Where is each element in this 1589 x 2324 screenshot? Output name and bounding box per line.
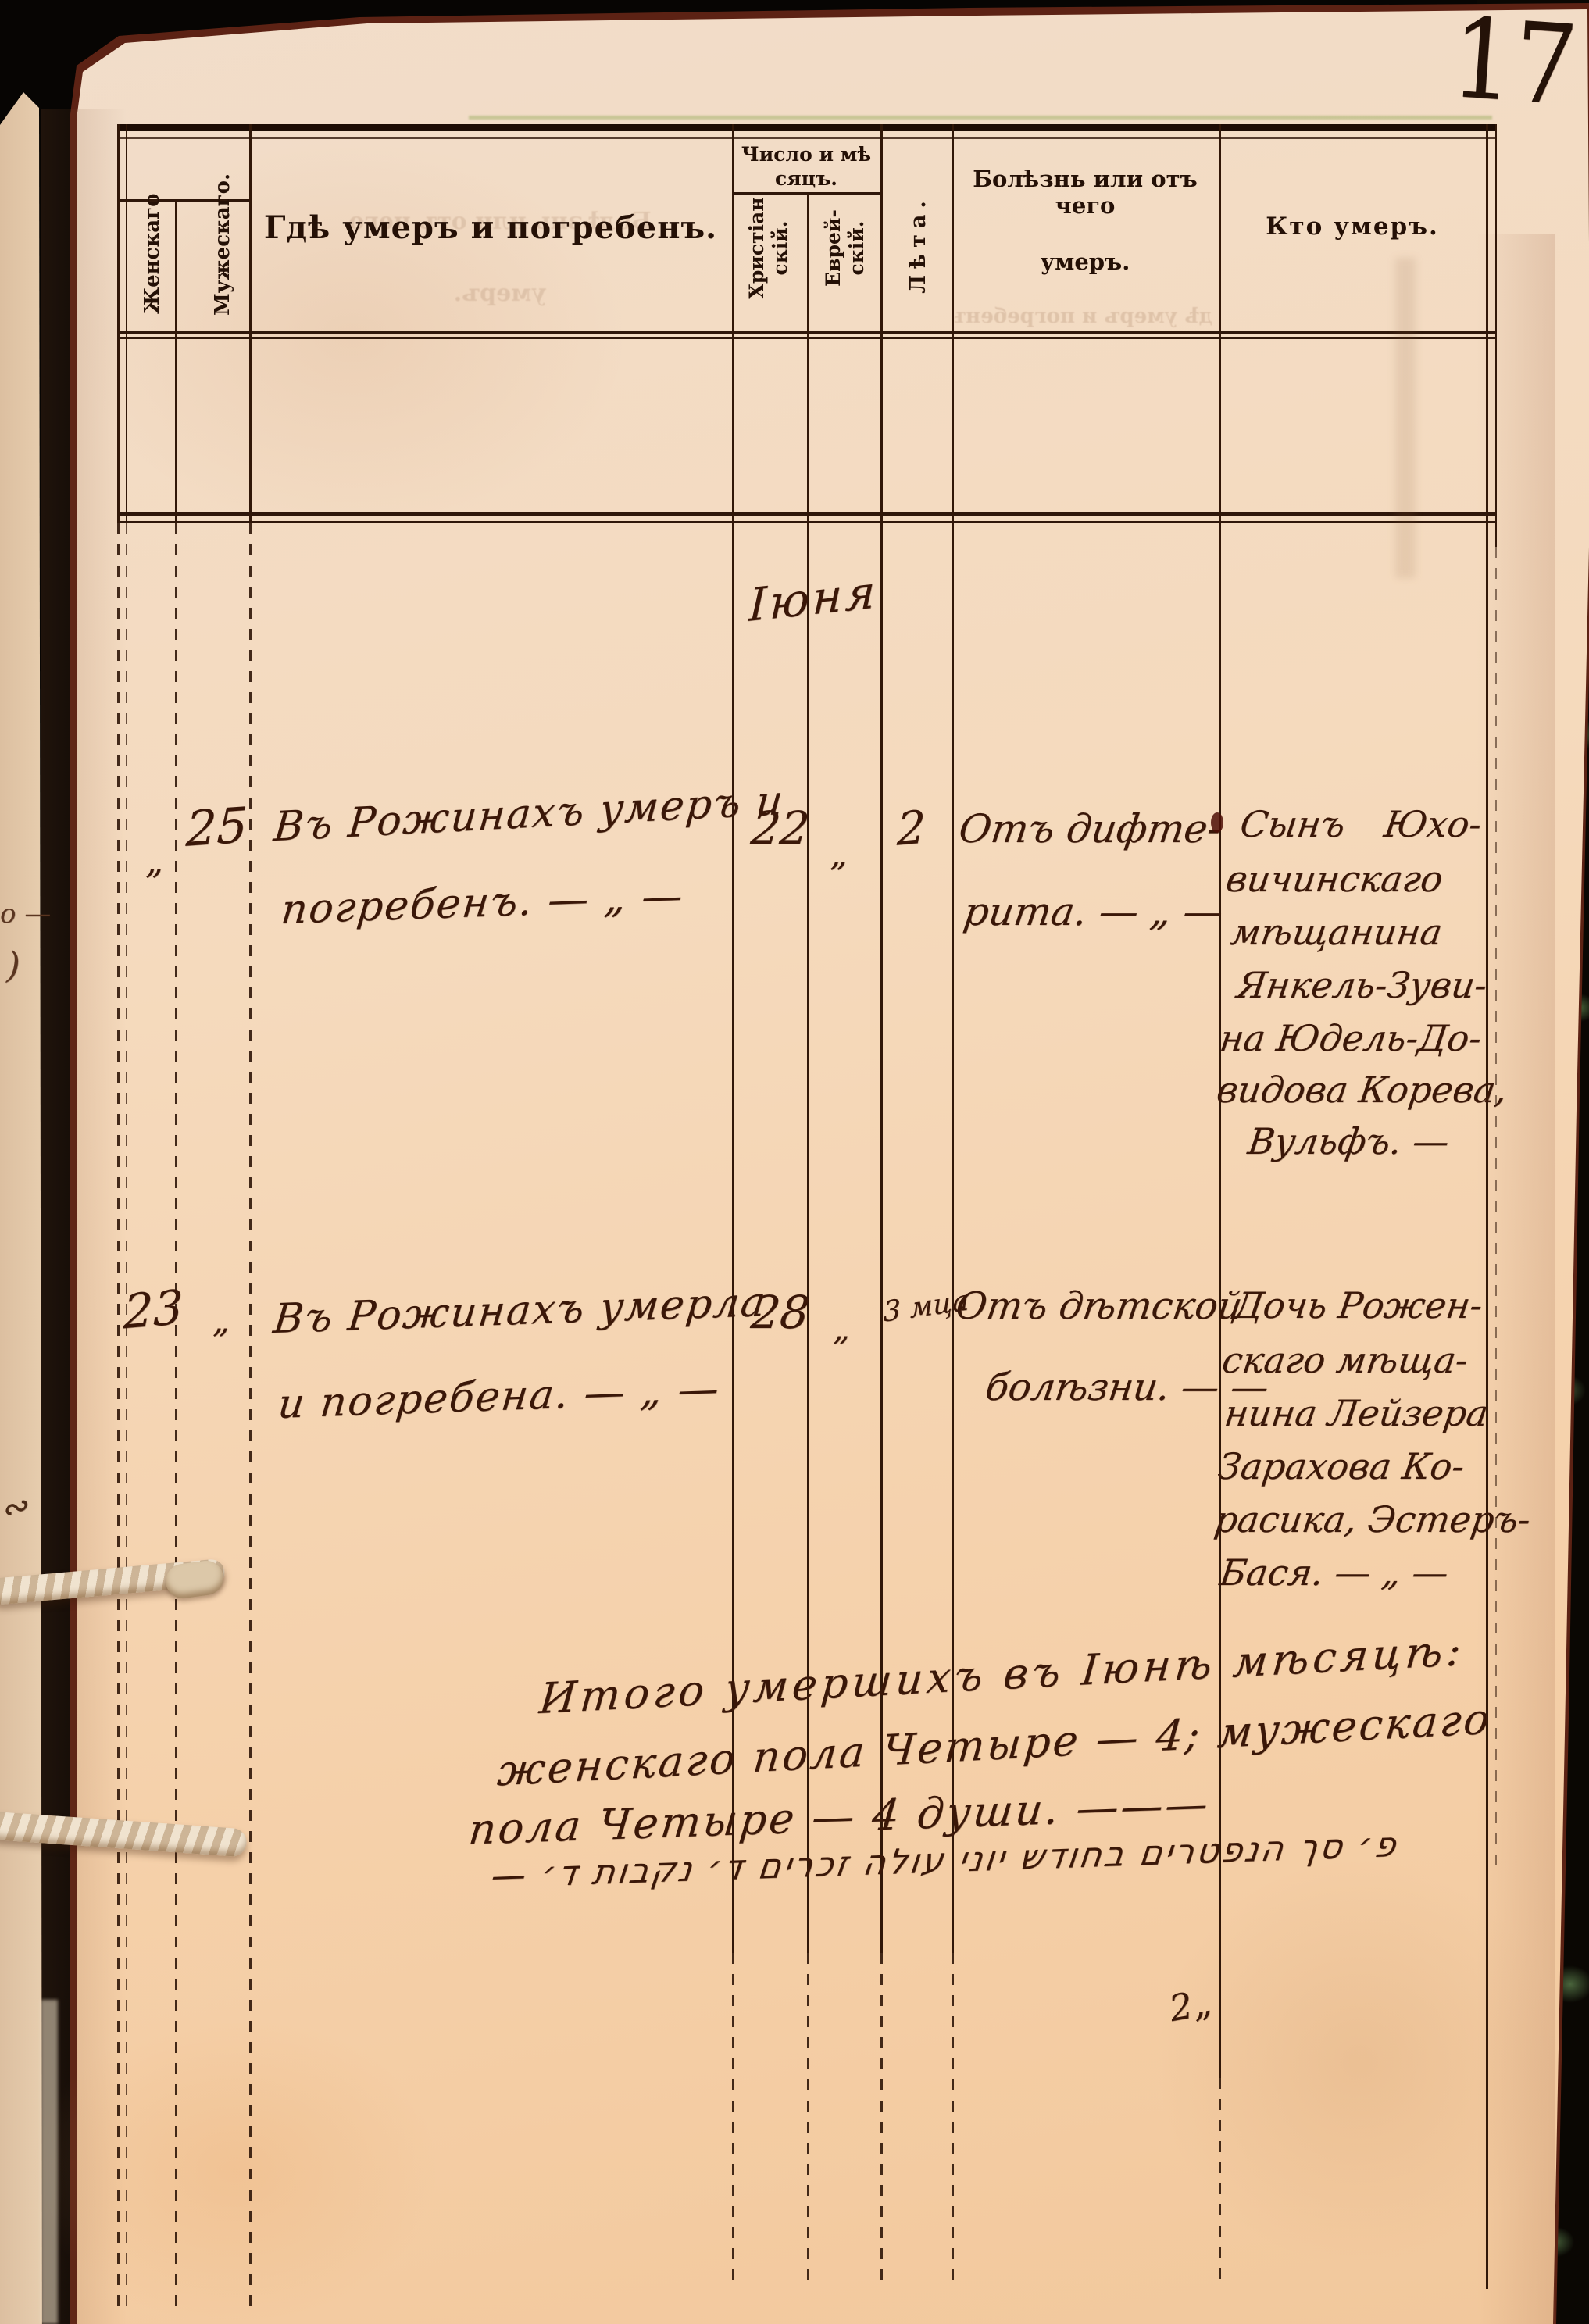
entry1-who-line1: Сынъ Юхо- <box>1237 803 1484 845</box>
christian-line1: Христіан <box>745 176 769 320</box>
bleedthrough-place-header: дѣ умеръ и погребенъ. <box>955 305 1212 328</box>
table-top-border-thin <box>117 137 1497 139</box>
entry2-male-ditto: „ <box>212 1301 230 1340</box>
jewish-line2: скій. <box>845 176 869 320</box>
entry2-who-line3: нина Лейзера <box>1222 1392 1491 1434</box>
col-line-place-date-lower <box>732 1953 734 2289</box>
margin-mark-1: о — <box>0 898 51 930</box>
entry1-cause-line1: Отъ дифте- <box>956 806 1224 851</box>
stray-mark: 2„ <box>1166 1981 1215 2029</box>
column-header-age: Лѣта. <box>906 172 930 316</box>
bleedthrough-cause-header: Болѣзнь или отъ чего умеръ. <box>266 186 734 330</box>
green-edge-tint <box>469 116 1492 120</box>
column-header-jewish-date: Еврей- скій. <box>822 176 869 320</box>
col-line-cause-who-lower <box>1219 2078 1221 2281</box>
col-line-left-a-lower <box>117 523 120 2312</box>
entry2-who-line6: Бася. — „ — <box>1217 1551 1451 1594</box>
column-header-who: Кто умеръ. <box>1219 212 1486 241</box>
entry2-who-line5: расика, Эстеръ- <box>1212 1498 1533 1540</box>
margin-mark-2: ) <box>6 944 20 986</box>
heavy-divider-b <box>117 521 1495 523</box>
entry2-cause-line1: Отъ дѣтской <box>953 1284 1245 1328</box>
entry2-who-line2: скаго мѣща- <box>1219 1339 1471 1381</box>
col-line-christian-jewish-lower <box>807 1953 809 2289</box>
entry2-who-line1: Дочь Рожен- <box>1231 1284 1485 1326</box>
table-right-border-a <box>1486 124 1488 2289</box>
column-header-place: Гдѣ умеръ и погребенъ. <box>249 209 732 246</box>
column-header-christian-date: Христіан скій. <box>745 176 792 320</box>
page-fold-highlight <box>41 2000 58 2324</box>
entry2-who-line4: Зарахова Ко- <box>1216 1445 1467 1487</box>
entry2-female-number: 23 <box>123 1280 184 1340</box>
page-number: 17 <box>1447 0 1580 130</box>
entry1-male-number: 25 <box>185 796 248 858</box>
entry1-date-jewish-ditto: „ <box>830 834 848 874</box>
col-line-male-place-lower <box>249 523 252 2312</box>
table-top-border <box>117 124 1497 131</box>
entry1-who-line5: на Юдель-До- <box>1217 1017 1484 1059</box>
ink-blot <box>1211 812 1223 833</box>
date-group-line1: Число и мѣ <box>732 142 880 166</box>
col-line-left-b-lower <box>126 523 127 2312</box>
entry1-who-line4: Янкель-Зуви- <box>1234 964 1490 1006</box>
entry1-who-line2: вичинскаго <box>1223 858 1445 900</box>
entry1-age: 2 <box>896 800 926 856</box>
entry2-date-jewish-ditto: „ <box>833 1309 850 1348</box>
table-right-border-b <box>1495 124 1497 547</box>
entry1-date-christian: 22 <box>748 801 812 855</box>
heavy-divider-a <box>117 512 1495 516</box>
entry1-who-line3: мѣщанина <box>1228 911 1444 953</box>
ghost-line: умеръ. <box>266 258 734 330</box>
col-line-male-place <box>249 124 252 523</box>
christian-line2: скій. <box>769 176 792 320</box>
bleedthrough-smudge <box>1395 258 1416 578</box>
column-header-cause-line2: умеръ. <box>952 248 1219 275</box>
scanned-register-page: Болѣзнь или отъ чего умеръ. дѣ умеръ и п… <box>0 0 1589 2324</box>
col-line-jewish-age-lower <box>880 1953 883 2289</box>
col-line-left-b <box>126 124 127 523</box>
header-bottom-rule-b <box>117 337 1495 339</box>
column-header-cause-line1: Болѣзнь или отъ чего <box>952 166 1219 219</box>
entry1-female-ditto: „ <box>145 842 163 882</box>
previous-page-edge <box>0 0 42 2324</box>
col-line-left-a <box>117 124 120 523</box>
right-edge-shade <box>1477 234 1555 2324</box>
entry1-who-line7: Вульфъ. — <box>1245 1120 1452 1162</box>
binding-fold-shadow <box>41 109 127 2324</box>
table-right-border-b-lower <box>1495 547 1497 1875</box>
entry1-cause-line2: рита. — „ — <box>961 889 1226 934</box>
jewish-line1: Еврей- <box>822 176 845 320</box>
header-bottom-rule-a <box>117 331 1495 334</box>
column-header-female: Женскаго <box>141 205 164 314</box>
column-header-male: Мужескаго. <box>211 198 234 316</box>
col-line-female-male <box>175 199 177 523</box>
entry2-date-christian: 28 <box>748 1286 812 1339</box>
col-line-female-male-lower <box>175 523 177 2312</box>
col-line-age-cause-lower <box>952 1953 954 2289</box>
entry1-who-line6: видова Корева, <box>1214 1069 1509 1111</box>
